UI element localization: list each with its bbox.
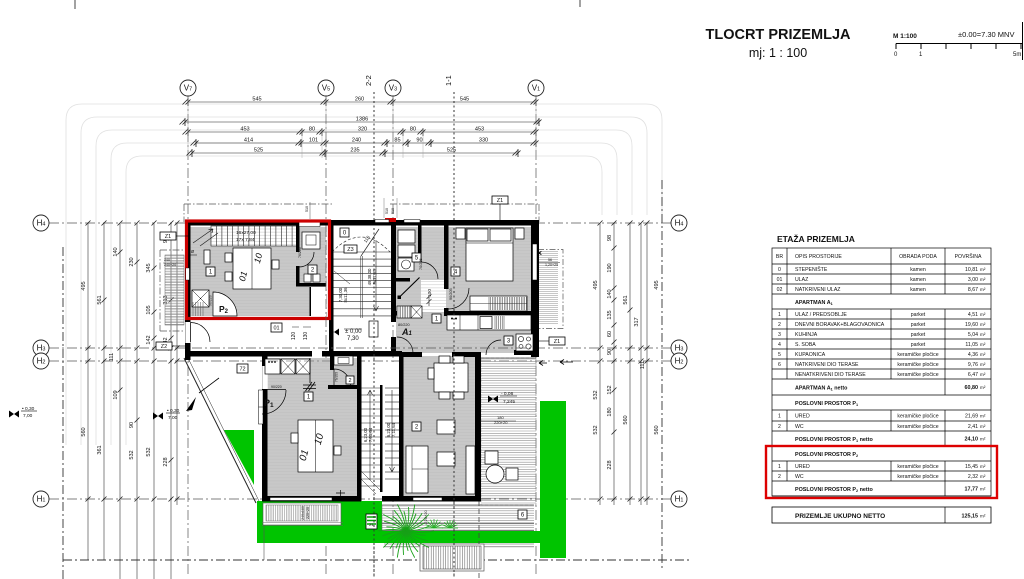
svg-text:361: 361 bbox=[97, 445, 103, 454]
svg-text:kamen: kamen bbox=[910, 277, 926, 283]
svg-text:ULAZ: ULAZ bbox=[795, 277, 808, 283]
svg-text:142: 142 bbox=[146, 335, 152, 344]
svg-text:317: 317 bbox=[634, 317, 640, 326]
svg-text:228: 228 bbox=[163, 457, 169, 466]
svg-text:3: 3 bbox=[778, 332, 781, 338]
svg-text:80/220: 80/220 bbox=[398, 323, 410, 327]
svg-text:120: 120 bbox=[291, 332, 297, 341]
svg-text:180: 180 bbox=[607, 407, 613, 416]
svg-text:keramičke pločice: keramičke pločice bbox=[897, 372, 938, 378]
svg-text:17,77: 17,77 bbox=[965, 486, 979, 492]
svg-text:4,36: 4,36 bbox=[968, 352, 978, 358]
svg-text:4,51: 4,51 bbox=[968, 312, 978, 318]
svg-text:190: 190 bbox=[607, 263, 613, 272]
svg-text:453: 453 bbox=[475, 127, 484, 133]
svg-text:414: 414 bbox=[244, 138, 253, 144]
svg-text:POSLOVNI PROSTOR P2: POSLOVNI PROSTOR P2 bbox=[795, 452, 858, 458]
svg-text:ETAŽA PRIZEMLJA: ETAŽA PRIZEMLJA bbox=[777, 233, 855, 244]
svg-text:M 1:100: M 1:100 bbox=[893, 33, 917, 40]
svg-text:- 0,06: - 0,06 bbox=[501, 391, 514, 397]
svg-text:76/205: 76/205 bbox=[335, 372, 339, 382]
svg-text:5,04: 5,04 bbox=[968, 332, 978, 338]
svg-text:90/205: 90/205 bbox=[449, 288, 453, 300]
svg-text:90: 90 bbox=[607, 349, 613, 355]
svg-text:60: 60 bbox=[607, 331, 613, 337]
svg-text:Z2: Z2 bbox=[161, 344, 167, 350]
svg-text:560: 560 bbox=[654, 425, 660, 434]
svg-text:1: 1 bbox=[778, 464, 781, 470]
svg-text:98: 98 bbox=[607, 235, 613, 241]
svg-text:560: 560 bbox=[81, 427, 87, 436]
svg-text:495: 495 bbox=[593, 280, 599, 289]
svg-text:PRIZEMLJE UKUPNO NETTO: PRIZEMLJE UKUPNO NETTO bbox=[795, 513, 885, 520]
svg-text:m²: m² bbox=[980, 514, 986, 519]
svg-text:60,80: 60,80 bbox=[965, 385, 979, 391]
svg-text:260: 260 bbox=[355, 97, 364, 103]
svg-text:±0.00=7.30 MNV: ±0.00=7.30 MNV bbox=[958, 30, 1014, 39]
svg-text:125,15: 125,15 bbox=[962, 514, 979, 520]
svg-text:parket: parket bbox=[911, 342, 926, 348]
svg-text:WC: WC bbox=[795, 474, 804, 480]
svg-text:19,60: 19,60 bbox=[965, 322, 978, 328]
svg-text:BR: BR bbox=[776, 254, 783, 260]
svg-text:561: 561 bbox=[623, 295, 629, 304]
svg-text:2: 2 bbox=[778, 322, 781, 328]
svg-text:OPIS PROSTORIJE: OPIS PROSTORIJE bbox=[795, 254, 842, 260]
svg-text:± 0,00: ± 0,00 bbox=[345, 329, 362, 335]
svg-text:STEPENIŠTE: STEPENIŠTE bbox=[795, 266, 828, 273]
svg-text:m²: m² bbox=[980, 312, 986, 317]
svg-text:90/220: 90/220 bbox=[209, 295, 213, 306]
svg-text:6,47: 6,47 bbox=[968, 372, 978, 378]
svg-text:495: 495 bbox=[81, 281, 87, 290]
svg-text:POVRŠINA: POVRŠINA bbox=[955, 253, 982, 260]
svg-text:m²: m² bbox=[980, 413, 986, 418]
svg-text:m²: m² bbox=[980, 486, 986, 491]
svg-text:POSLOVNI PROSTOR P2 netto: POSLOVNI PROSTOR P2 netto bbox=[795, 487, 874, 493]
svg-text:URED: URED bbox=[795, 464, 810, 470]
svg-text:70/205: 70/205 bbox=[419, 258, 423, 270]
svg-text:7,245: 7,245 bbox=[503, 399, 515, 405]
svg-text:POSLOVNI PROSTOR P1: POSLOVNI PROSTOR P1 bbox=[795, 401, 858, 407]
svg-text:21,69: 21,69 bbox=[965, 413, 978, 419]
svg-text:0: 0 bbox=[778, 267, 781, 273]
svg-text:2,32: 2,32 bbox=[968, 474, 978, 480]
svg-text:Z1: Z1 bbox=[497, 198, 503, 204]
svg-text:m²: m² bbox=[980, 352, 986, 357]
svg-text:KUPAONICA: KUPAONICA bbox=[795, 352, 826, 358]
svg-text:1386: 1386 bbox=[356, 117, 368, 123]
svg-text:m²: m² bbox=[980, 362, 986, 367]
svg-text:01: 01 bbox=[273, 326, 279, 332]
svg-text:11,05: 11,05 bbox=[965, 342, 978, 348]
svg-text:6: 6 bbox=[778, 362, 781, 368]
svg-text:2: 2 bbox=[348, 378, 351, 384]
svg-text:m²: m² bbox=[980, 385, 986, 390]
svg-text:532: 532 bbox=[593, 390, 599, 399]
svg-text:545: 545 bbox=[460, 97, 469, 103]
svg-text:02: 02 bbox=[777, 287, 783, 293]
svg-text:532: 532 bbox=[146, 447, 152, 456]
svg-text:NENATKRIVENI DIO TERASE: NENATKRIVENI DIO TERASE bbox=[795, 372, 866, 378]
svg-text:OBRADA PODA: OBRADA PODA bbox=[899, 254, 937, 260]
svg-text:17x 7,84: 17x 7,84 bbox=[236, 237, 255, 243]
svg-text:510: 510 bbox=[385, 208, 389, 214]
svg-text:m²: m² bbox=[980, 342, 986, 347]
svg-text:• 0,30: • 0,30 bbox=[22, 406, 35, 412]
svg-text:510: 510 bbox=[391, 208, 395, 214]
svg-text:220+20: 220+20 bbox=[423, 510, 428, 524]
svg-text:240+20: 240+20 bbox=[164, 263, 176, 267]
svg-text:m²: m² bbox=[980, 287, 986, 292]
svg-text:ø: ø bbox=[191, 249, 194, 255]
svg-text:m²: m² bbox=[980, 474, 986, 479]
svg-text:561: 561 bbox=[97, 295, 103, 304]
svg-text:m²: m² bbox=[980, 436, 986, 441]
svg-text:109: 109 bbox=[113, 390, 119, 399]
svg-text:1: 1 bbox=[778, 312, 781, 318]
svg-text:NATKRIVENI DIO TERASE: NATKRIVENI DIO TERASE bbox=[795, 362, 859, 368]
svg-text:220+20: 220+20 bbox=[306, 507, 310, 519]
svg-text:72: 72 bbox=[239, 367, 245, 373]
svg-text:8x11,36: 8x11,36 bbox=[343, 287, 348, 303]
svg-text:7,61,64: 7,61,64 bbox=[368, 427, 373, 442]
svg-text:1-1: 1-1 bbox=[444, 75, 453, 86]
svg-text:15,45: 15,45 bbox=[965, 464, 978, 470]
svg-text:90/220: 90/220 bbox=[271, 385, 282, 389]
svg-text:330: 330 bbox=[479, 138, 488, 144]
svg-text:Z3: Z3 bbox=[347, 247, 353, 253]
svg-text:240x180: 240x180 bbox=[301, 506, 305, 520]
svg-text:1,20+25: 1,20+25 bbox=[545, 263, 558, 267]
svg-text:mj: 1 : 100: mj: 1 : 100 bbox=[749, 46, 807, 60]
svg-text:510: 510 bbox=[305, 206, 309, 212]
svg-text:525: 525 bbox=[254, 148, 263, 154]
svg-text:7,00: 7,00 bbox=[168, 415, 178, 421]
svg-text:532: 532 bbox=[129, 450, 135, 459]
svg-text:keramičke pločice: keramičke pločice bbox=[897, 413, 938, 419]
svg-text:85: 85 bbox=[394, 138, 400, 144]
svg-text:8,67: 8,67 bbox=[968, 287, 978, 293]
svg-text:S. SOBA: S. SOBA bbox=[795, 342, 816, 348]
svg-text:APARTMAN A1: APARTMAN A1 bbox=[795, 300, 833, 306]
svg-text:7,30: 7,30 bbox=[347, 336, 359, 342]
svg-text:140: 140 bbox=[607, 289, 613, 298]
svg-text:235: 235 bbox=[350, 148, 359, 154]
svg-text:105: 105 bbox=[146, 305, 152, 314]
svg-text:NATKRIVENI ULAZ: NATKRIVENI ULAZ bbox=[795, 287, 840, 293]
svg-text:532: 532 bbox=[593, 425, 599, 434]
svg-text:7,00: 7,00 bbox=[23, 413, 33, 419]
svg-text:320: 320 bbox=[358, 127, 367, 133]
svg-text:APARTMAN A1 netto: APARTMAN A1 netto bbox=[795, 385, 848, 391]
svg-text:2,41: 2,41 bbox=[968, 424, 978, 430]
svg-text:9,76: 9,76 bbox=[968, 362, 978, 368]
svg-text:152: 152 bbox=[607, 385, 613, 394]
svg-text:4: 4 bbox=[778, 342, 781, 348]
svg-text:TLOCRT PRIZEMLJA: TLOCRT PRIZEMLJA bbox=[706, 27, 852, 43]
svg-text:2: 2 bbox=[778, 424, 781, 430]
svg-text:parket: parket bbox=[911, 332, 926, 338]
svg-text:111: 111 bbox=[640, 361, 646, 370]
svg-text:240: 240 bbox=[164, 258, 170, 262]
svg-text:16x27,00: 16x27,00 bbox=[236, 230, 256, 236]
svg-text:80: 80 bbox=[309, 127, 315, 133]
svg-text:KUHINJA: KUHINJA bbox=[795, 332, 818, 338]
svg-text:ULAZ / PREDSOBLJE: ULAZ / PREDSOBLJE bbox=[795, 312, 847, 318]
svg-text:keramičke pločice: keramičke pločice bbox=[897, 464, 938, 470]
svg-text:130: 130 bbox=[303, 332, 309, 341]
svg-text:5m: 5m bbox=[1013, 52, 1021, 58]
svg-text:keramičke pločice: keramičke pločice bbox=[897, 474, 938, 480]
svg-text:2: 2 bbox=[778, 474, 781, 480]
svg-text:453: 453 bbox=[240, 127, 249, 133]
svg-text:parket: parket bbox=[911, 312, 926, 318]
svg-text:101: 101 bbox=[309, 138, 318, 144]
svg-text:240: 240 bbox=[352, 138, 361, 144]
svg-text:m²: m² bbox=[980, 332, 986, 337]
svg-text:Z1: Z1 bbox=[554, 339, 560, 345]
svg-text:kamen: kamen bbox=[910, 267, 926, 273]
svg-text:80: 80 bbox=[410, 127, 416, 133]
svg-text:135: 135 bbox=[607, 310, 613, 319]
svg-text:90: 90 bbox=[129, 422, 135, 428]
svg-text:3,00: 3,00 bbox=[968, 277, 978, 283]
svg-text:POSLOVNI PROSTOR P1 netto: POSLOVNI PROSTOR P1 netto bbox=[795, 437, 874, 443]
svg-text:• 0,30: • 0,30 bbox=[167, 408, 180, 414]
svg-text:5: 5 bbox=[778, 352, 781, 358]
svg-text:DNEVNI BORAVAK+BLAGOVAONICA: DNEVNI BORAVAK+BLAGOVAONICA bbox=[795, 322, 885, 328]
svg-text:76/206: 76/206 bbox=[298, 247, 302, 258]
svg-text:525: 525 bbox=[447, 148, 456, 154]
svg-text:m²: m² bbox=[980, 277, 986, 282]
svg-text:111: 111 bbox=[109, 353, 115, 362]
svg-text:URED: URED bbox=[795, 413, 810, 419]
svg-text:24,10: 24,10 bbox=[965, 436, 979, 442]
svg-text:keramičke pločice: keramičke pločice bbox=[897, 424, 938, 430]
svg-text:495: 495 bbox=[654, 280, 660, 289]
svg-text:m²: m² bbox=[980, 322, 986, 327]
svg-text:140: 140 bbox=[113, 247, 119, 256]
svg-text:7,11,64: 7,11,64 bbox=[391, 422, 396, 437]
svg-text:01: 01 bbox=[777, 277, 783, 283]
svg-text:WC: WC bbox=[795, 424, 804, 430]
svg-text:56: 56 bbox=[548, 258, 552, 262]
svg-text:345: 345 bbox=[146, 263, 152, 272]
svg-text:keramičke pločice: keramičke pločice bbox=[897, 352, 938, 358]
svg-text:parket: parket bbox=[911, 322, 926, 328]
svg-text:m²: m² bbox=[980, 267, 986, 272]
svg-text:kamen: kamen bbox=[910, 287, 926, 293]
svg-text:1: 1 bbox=[778, 413, 781, 419]
svg-text:2-2: 2-2 bbox=[364, 75, 373, 86]
svg-text:Z1: Z1 bbox=[165, 234, 171, 240]
svg-text:560: 560 bbox=[623, 415, 629, 424]
svg-text:m²: m² bbox=[980, 424, 986, 429]
svg-text:m²: m² bbox=[980, 464, 986, 469]
svg-text:90: 90 bbox=[416, 138, 422, 144]
svg-text:m²: m² bbox=[980, 372, 986, 377]
svg-text:228: 228 bbox=[607, 460, 613, 469]
svg-text:keramičke pločice: keramičke pločice bbox=[897, 362, 938, 368]
svg-text:10,81: 10,81 bbox=[965, 267, 978, 273]
svg-text:230: 230 bbox=[129, 257, 135, 266]
svg-text:545: 545 bbox=[252, 97, 261, 103]
